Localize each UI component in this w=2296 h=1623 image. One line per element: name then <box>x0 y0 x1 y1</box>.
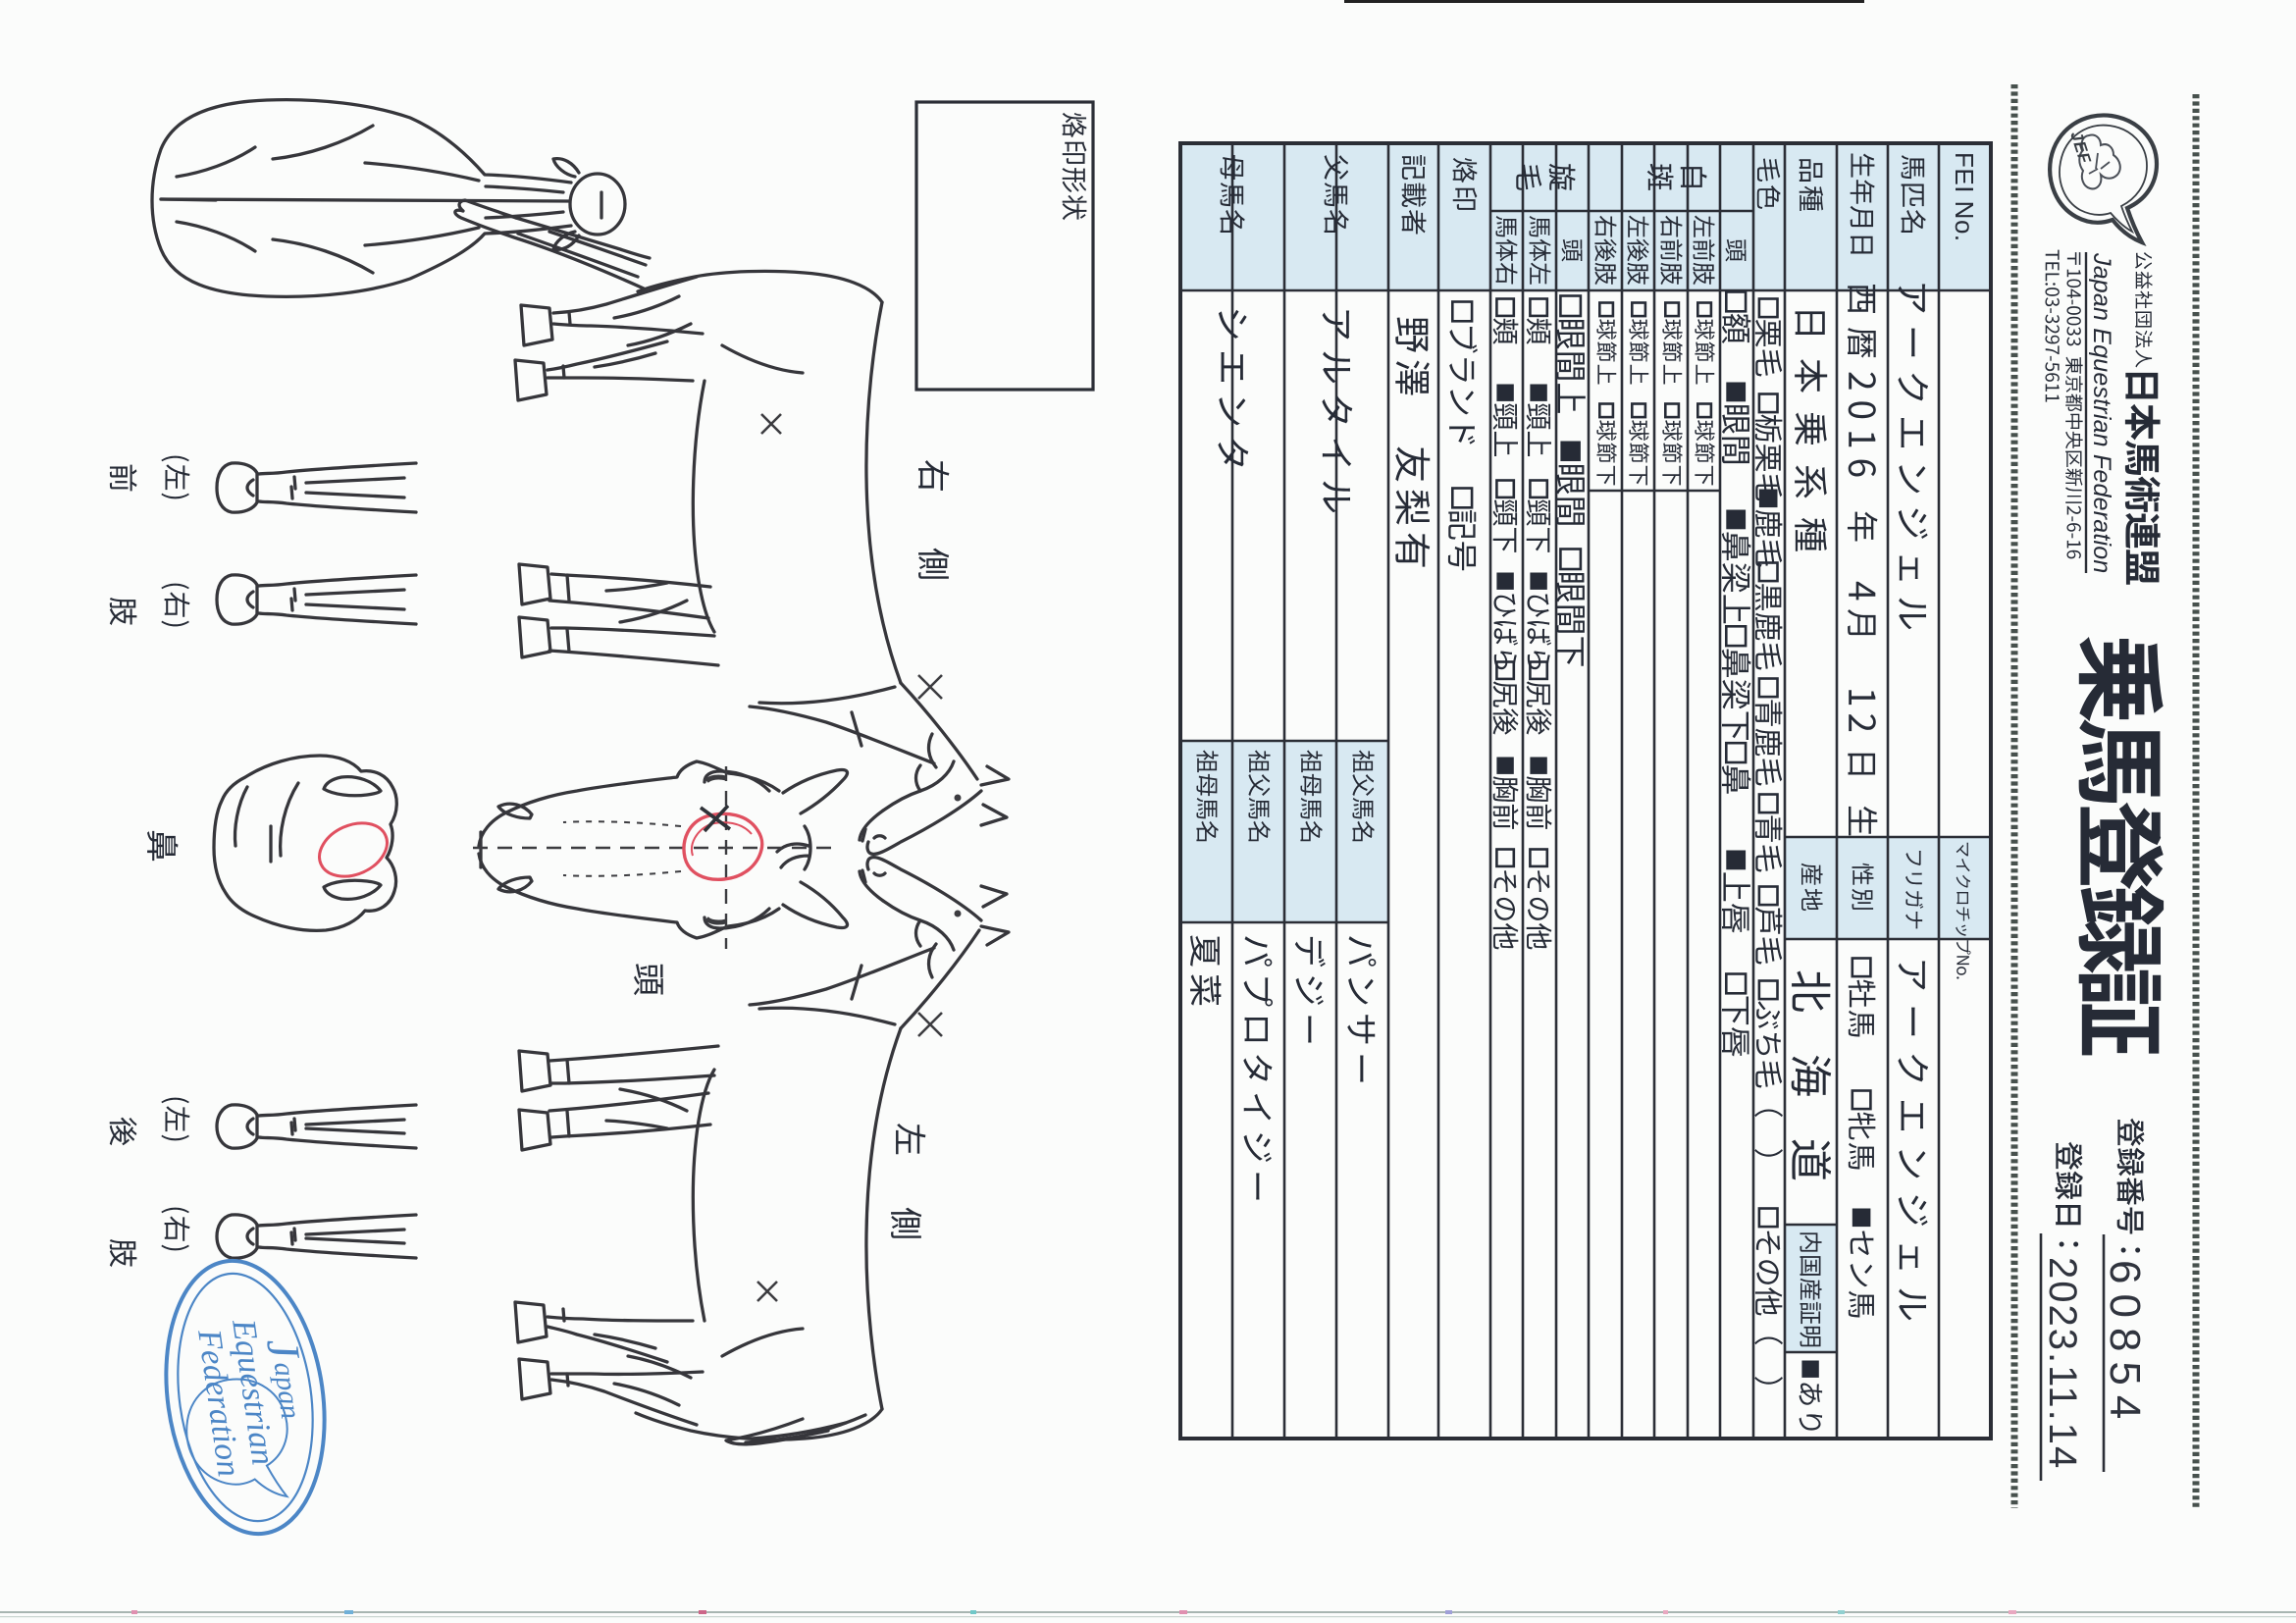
svg-text:FEI No.: FEI No. <box>1950 152 1979 242</box>
svg-text:2023.11.14: 2023.11.14 <box>2041 1257 2084 1470</box>
svg-text:Japan Equestrian Federation: Japan Equestrian Federation <box>2088 252 2115 573</box>
svg-text:60854: 60854 <box>2101 1260 2149 1429</box>
